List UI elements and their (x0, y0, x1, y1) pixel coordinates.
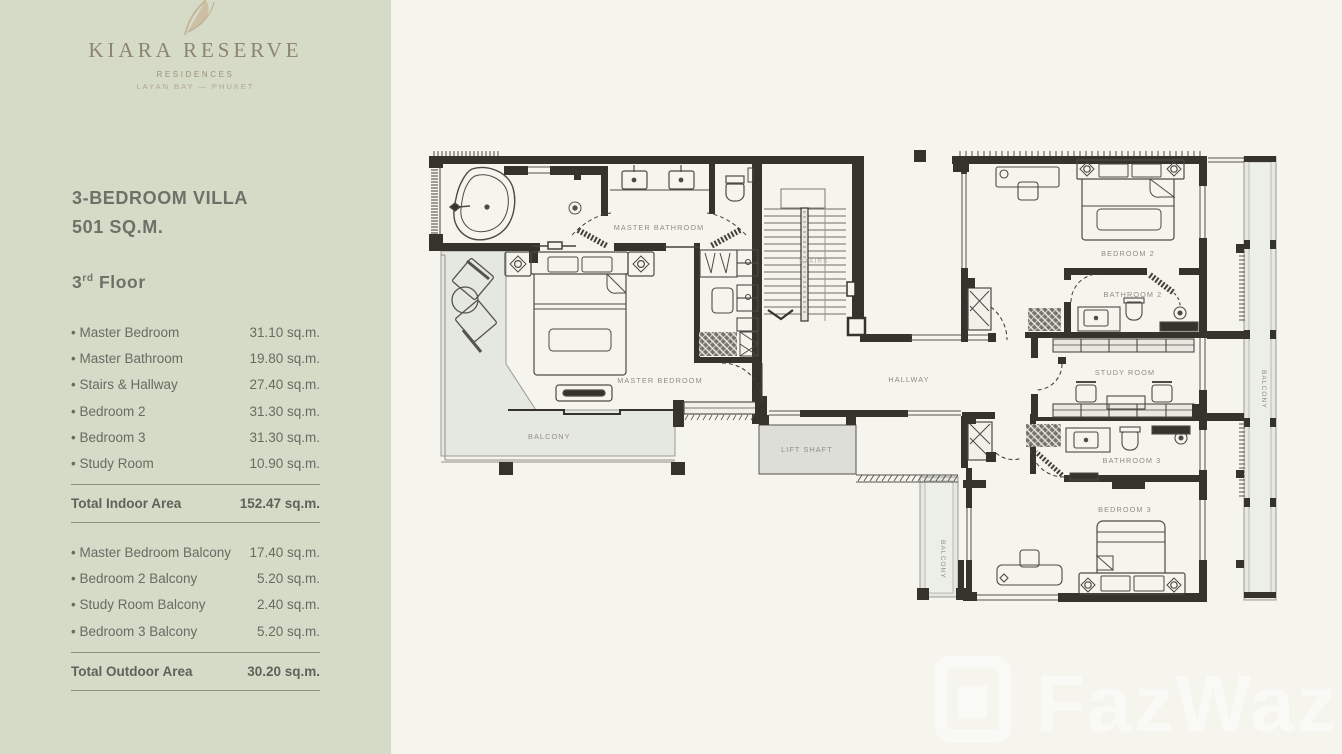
svg-text:LIFT SHAFT: LIFT SHAFT (781, 445, 833, 454)
svg-text:STAIRS: STAIRS (799, 258, 829, 265)
svg-text:BALCONY: BALCONY (528, 432, 571, 441)
svg-text:HALLWAY: HALLWAY (888, 375, 929, 384)
svg-text:BATHROOM 2: BATHROOM 2 (1104, 290, 1163, 299)
svg-text:BALCONY: BALCONY (1260, 370, 1267, 409)
svg-text:BALCONY: BALCONY (939, 540, 946, 579)
svg-text:FazWaz: FazWaz (1036, 659, 1338, 748)
svg-text:BEDROOM 3: BEDROOM 3 (1098, 505, 1152, 514)
svg-text:MASTER BEDROOM: MASTER BEDROOM (617, 376, 703, 385)
svg-text:MASTER BATHROOM: MASTER BATHROOM (614, 223, 705, 232)
svg-text:BATHROOM 3: BATHROOM 3 (1103, 456, 1162, 465)
svg-text:STUDY ROOM: STUDY ROOM (1095, 368, 1155, 377)
svg-text:BEDROOM 2: BEDROOM 2 (1101, 249, 1155, 258)
